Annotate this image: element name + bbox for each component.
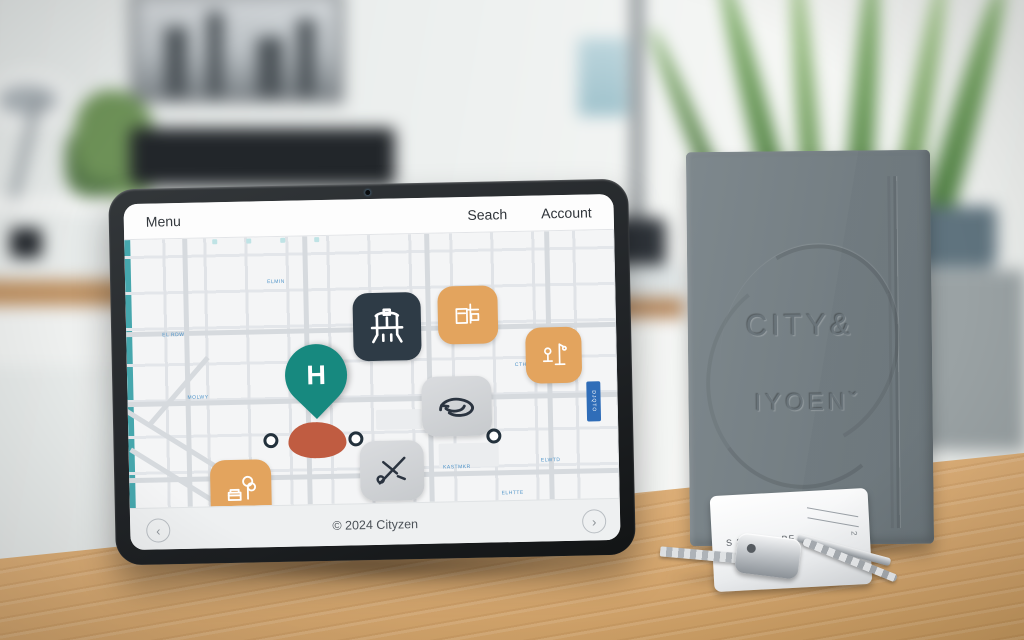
tablet-screen: Menu Seach Account bbox=[123, 194, 620, 550]
app-footer: ‹ © 2024 Cityzen › bbox=[130, 498, 621, 550]
notebook-logo-line1: CITY& bbox=[746, 309, 855, 344]
office-scene-photo: CITY& IYOENˇ S 302818L BF 2 Menu Seach A… bbox=[0, 0, 1024, 640]
account-button[interactable]: Account bbox=[541, 204, 592, 221]
blue-binder bbox=[578, 38, 628, 116]
menu-button[interactable]: Menu bbox=[146, 212, 181, 229]
back-button[interactable]: ‹ bbox=[146, 518, 170, 542]
skyline-tower bbox=[165, 27, 187, 97]
city-skyline-photo bbox=[137, 0, 337, 97]
forward-button[interactable]: › bbox=[582, 509, 606, 533]
skyline-tower bbox=[257, 37, 283, 97]
street-label: ELHTTE bbox=[502, 490, 524, 496]
search-button[interactable]: Seach bbox=[467, 206, 507, 223]
park-kiosk-icon[interactable] bbox=[210, 459, 272, 508]
route-tick bbox=[314, 237, 319, 242]
navbar-spacer bbox=[181, 215, 434, 220]
forward-chevron-icon: › bbox=[592, 515, 597, 528]
copyright-text: © 2024 Cityzen bbox=[332, 517, 418, 533]
monitor bbox=[130, 128, 395, 186]
street-lamp-park-icon[interactable] bbox=[525, 327, 582, 384]
card-line bbox=[807, 507, 858, 517]
black-pot bbox=[10, 228, 42, 258]
blue-street-sign: DJQTO bbox=[586, 381, 601, 421]
pin-letter: H bbox=[306, 359, 326, 390]
scissors-icon[interactable] bbox=[359, 440, 424, 501]
background-desk-wood bbox=[0, 280, 125, 306]
route-tick bbox=[280, 238, 285, 243]
background-desk-white bbox=[0, 306, 125, 366]
hat-swirl-icon[interactable] bbox=[421, 376, 492, 437]
street-label: EL RDW bbox=[162, 332, 184, 338]
hotel-icon[interactable] bbox=[437, 285, 498, 344]
notebook-logo-line2: IYOENˇ bbox=[754, 388, 861, 417]
fob-button bbox=[746, 543, 756, 553]
back-chevron-icon: ‹ bbox=[156, 524, 161, 537]
street-label: MOLWY bbox=[187, 394, 208, 400]
building-block bbox=[376, 409, 422, 430]
route-tick bbox=[246, 239, 251, 244]
street-label: KASTMKR bbox=[443, 464, 471, 471]
tablet: Menu Seach Account bbox=[108, 179, 636, 566]
card-line bbox=[807, 517, 858, 527]
front-camera bbox=[365, 190, 370, 195]
street-label: ELMIN bbox=[267, 279, 285, 285]
skyline-tower bbox=[207, 12, 223, 97]
key-fob bbox=[734, 532, 802, 580]
city-picture-frame bbox=[130, 0, 344, 104]
city-map[interactable]: EL RDW MOLWY ELMIN KASTMKR ELWTD ELHTTE … bbox=[124, 230, 620, 508]
street-label: ELWTD bbox=[541, 457, 561, 463]
route-tick bbox=[212, 239, 217, 244]
gray-notebook: CITY& IYOENˇ bbox=[686, 150, 934, 547]
sign-text: DJQTO bbox=[590, 390, 596, 412]
desk-lamp-head bbox=[0, 85, 58, 115]
skyline-tower bbox=[297, 19, 315, 97]
card-corner-mark: 2 bbox=[849, 531, 858, 536]
transit-station-icon[interactable] bbox=[352, 292, 421, 361]
